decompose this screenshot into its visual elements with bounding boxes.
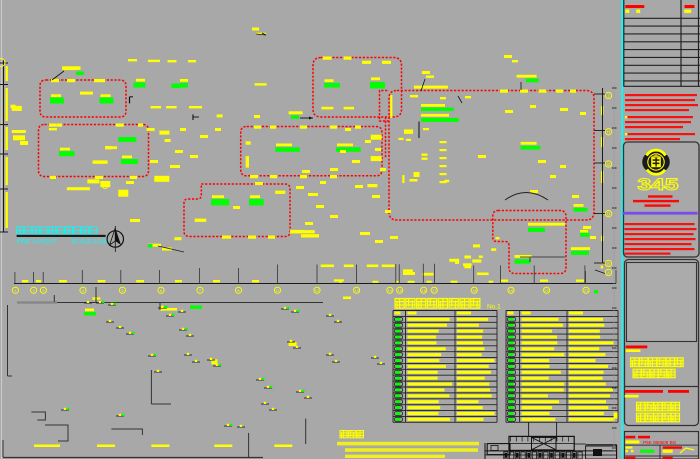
svg-text:19: 19 [509, 288, 514, 293]
svg-text:14: 14 [388, 288, 393, 293]
svg-text:A: A [607, 270, 610, 275]
svg-text:12: 12 [315, 288, 320, 293]
svg-text:D: D [607, 212, 610, 217]
svg-text:345: 345 [638, 175, 679, 194]
svg-text:13: 13 [354, 288, 359, 293]
svg-text:B: B [607, 261, 610, 266]
svg-text:15: 15 [397, 288, 402, 293]
svg-text:No.1: No.1 [487, 304, 501, 311]
svg-text:P5K 080508 BG: P5K 080508 BG [643, 440, 677, 445]
svg-text:21: 21 [584, 288, 589, 293]
svg-text:16: 16 [421, 288, 426, 293]
svg-text:G: G [607, 162, 610, 167]
svg-text:SCALE:1/100: SCALE:1/100 [71, 239, 109, 246]
svg-text:18: 18 [472, 288, 477, 293]
svg-text:J: J [607, 93, 609, 98]
svg-text:20: 20 [544, 288, 549, 293]
svg-text:H: H [607, 130, 610, 135]
svg-text:17: 17 [432, 288, 437, 293]
svg-text:FIRE LAYOUT: FIRE LAYOUT [17, 239, 57, 246]
